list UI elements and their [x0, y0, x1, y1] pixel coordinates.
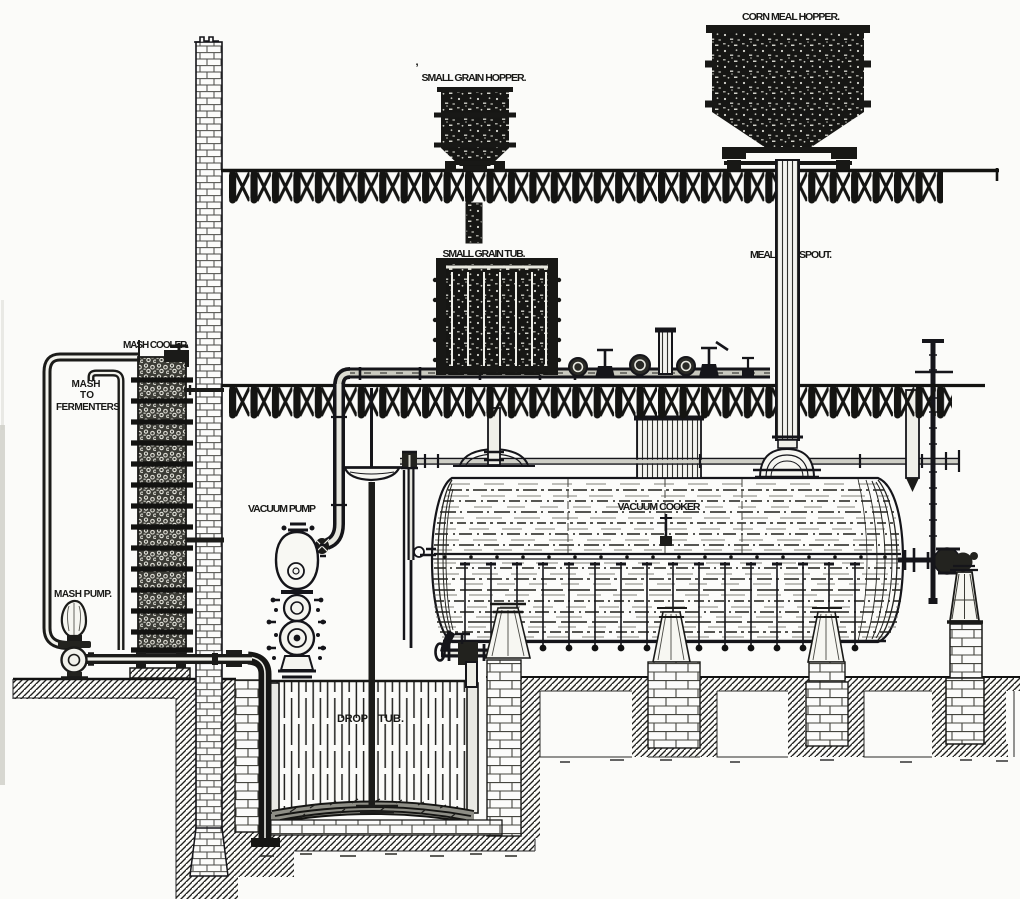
svg-text:SPOUT.: SPOUT.: [799, 249, 832, 261]
svg-text:SMALL GRAIN HOPPER.: SMALL GRAIN HOPPER.: [422, 72, 527, 84]
svg-text:TO: TO: [80, 390, 94, 401]
svg-text:MASH COOLER.: MASH COOLER.: [123, 340, 189, 351]
svg-text:MASH PUMP.: MASH PUMP.: [54, 589, 112, 600]
svg-text:MEAL: MEAL: [750, 249, 777, 261]
svg-text:CORN MEAL HOPPER.: CORN MEAL HOPPER.: [742, 11, 840, 23]
svg-text:DROP: DROP: [337, 713, 368, 725]
svg-text:TUB.: TUB.: [378, 713, 404, 725]
svg-text:FERMENTERS: FERMENTERS: [56, 402, 120, 413]
svg-text:VACUUM PUMP: VACUUM PUMP: [248, 503, 316, 515]
svg-text:’: ’: [415, 61, 418, 75]
svg-text:MASH: MASH: [72, 379, 101, 390]
svg-text:SMALL GRAIN TUB.: SMALL GRAIN TUB.: [443, 248, 526, 260]
svg-text:VACUUM COOKER: VACUUM COOKER: [618, 501, 701, 513]
